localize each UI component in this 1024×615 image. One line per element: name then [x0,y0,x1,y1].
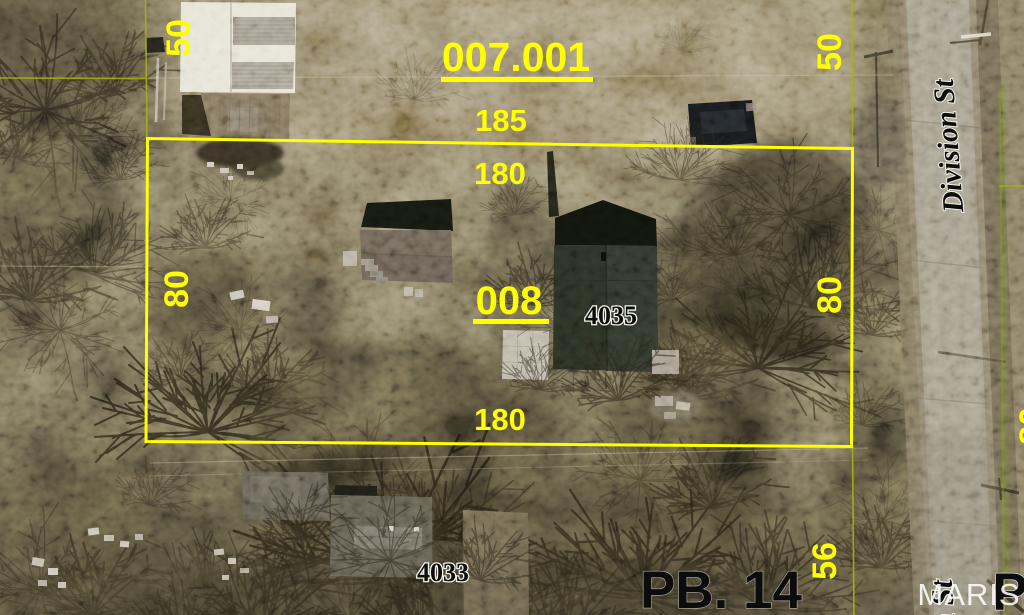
svg-text:180: 180 [474,402,526,437]
svg-text:008: 008 [476,279,543,323]
svg-text:80: 80 [158,270,196,308]
svg-text:50: 50 [160,19,198,57]
svg-text:007.001: 007.001 [442,34,590,80]
svg-text:PB. 14: PB. 14 [640,561,803,615]
svg-text:4035: 4035 [585,301,637,330]
svg-text:80: 80 [811,276,849,314]
svg-text:80: 80 [1013,407,1024,445]
svg-text:4033: 4033 [417,558,469,587]
svg-text:MARIS: MARIS [917,577,1020,612]
svg-text:50: 50 [811,33,849,71]
svg-text:185: 185 [475,103,527,138]
svg-text:56: 56 [806,542,844,580]
svg-text:180: 180 [474,156,526,191]
